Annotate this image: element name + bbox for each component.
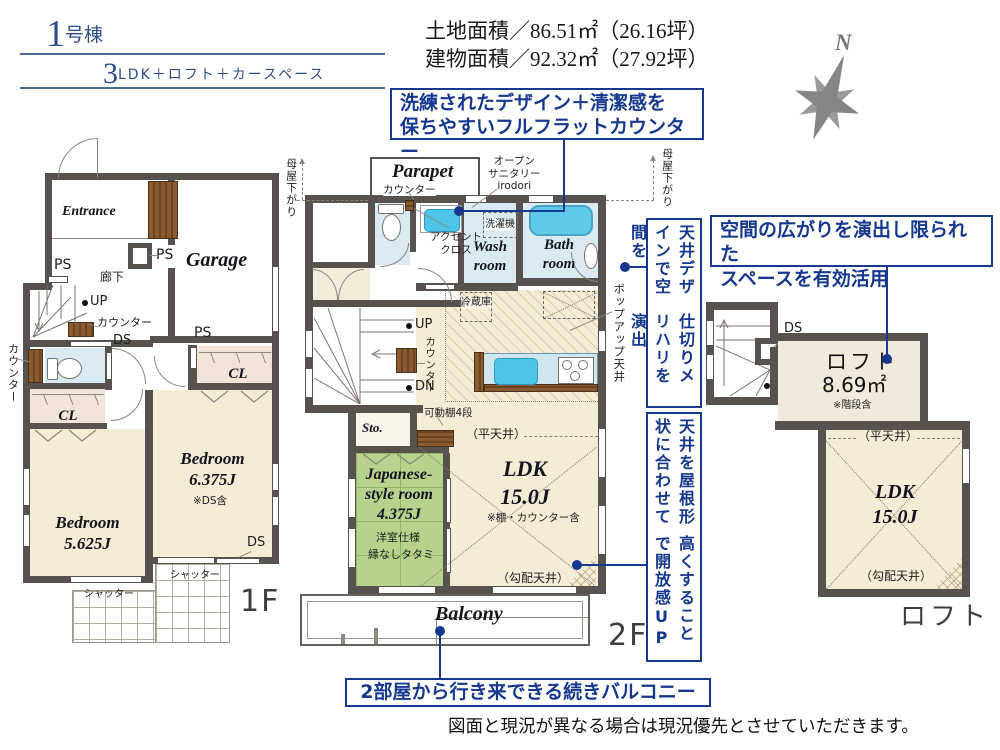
open-sanitary-line3: irodori [488,180,541,193]
closet-label: CL [218,365,258,384]
jp-note1: 洋室仕様 [376,532,420,545]
counter-label-vertical: カウンター [6,343,19,403]
closet-rod [199,352,271,363]
window [528,195,554,203]
bath-line2: room [528,255,590,274]
pointer-line [150,255,158,256]
window [378,586,436,594]
window [272,496,279,526]
shutter-label: シャッター [84,589,134,601]
accent-counter-wedge [405,200,414,211]
bathroom-label: Bath room [528,236,590,274]
stair-counter [396,348,417,373]
up-dot [82,300,88,306]
folding-door-mark [200,390,230,404]
moya-dash [653,160,654,200]
ds-slot [70,341,112,347]
wall [272,173,279,270]
ceiling-boundary-line [917,438,960,439]
bedroom1-label: Bedroom 5.625J [40,512,135,555]
up-label: UP [90,295,107,310]
connector-line [628,266,646,268]
flat-counter-line2: 保ちやすいフルフラットカウンター [400,115,694,164]
window [272,463,279,491]
window [706,354,714,380]
bedroom2-size: 6.375J [165,469,260,490]
toilet-bowl [382,214,401,241]
annotation-loft-space: 空間の広がりを演出し限られた スペースを有効活用 [710,215,993,267]
connector-dot [620,262,630,272]
folding-door-mark [68,429,98,443]
ceiling-height-col1: 天井を屋根形状に合わせて [651,418,697,535]
wall [168,268,175,340]
annotation-ceiling-height: 天井を屋根形状に合わせて 高くすることで開放感UP [646,412,702,662]
connector-line [459,210,565,212]
toilet-tank [378,204,404,214]
annotation-ceiling-design: 天井デザインで空間を 仕切りメリハリを演出 [646,218,702,408]
loft-ldk-label: LDK 15.0J [855,480,935,530]
ps-slot [48,276,68,283]
annotation-balcony: 2部屋から行き来できる続きバルコニー [345,678,711,707]
moya-arrow [299,158,305,164]
ps-label: PS [194,325,211,341]
entrance-label: Entrance [62,203,116,221]
floor2-label: 2F [608,618,648,653]
ceiling-height-col2: 高くすることで開放感UP [651,535,697,656]
unit-number: 1 [46,13,65,55]
ps-box [128,243,152,269]
loft-ldk-size: 15.0J [855,505,935,530]
wall [145,390,153,583]
ceiling-boundary-line [828,438,856,439]
up-label: UP [415,318,432,333]
wash-line2: room [464,257,516,276]
connector-line [439,632,441,678]
flat-counter-line1: 洗練されたデザイン＋清潔感を [400,91,694,115]
moya-dash [302,163,303,200]
compass-north-label: N [834,30,853,55]
closet-label: CL [48,407,88,426]
shutter-window [70,576,142,583]
balcony-post [374,628,378,644]
open-sanitary-line2: サニタリー [488,168,541,181]
moya-dash [297,200,368,201]
bedroom1-size: 5.625J [40,533,135,554]
entrance-door-arc [58,138,98,178]
loft-space-line2: スペースを有効活用 [720,267,983,291]
shutter-window [157,557,215,564]
wall [706,397,778,405]
wall [272,330,279,564]
unit-title: 1号棟 [46,12,103,56]
plan-suffix: LDK＋ロフト＋カースペース [118,67,325,83]
ds-label: DS [113,334,131,349]
burner-icon [578,360,588,370]
jp-size: 4.375J [352,505,446,525]
bedroom2-note: ※DS含 [193,495,227,507]
ldk-name: LDK [485,455,565,483]
washroom-label: Wash room [464,238,516,276]
wall [150,336,279,343]
connector-line [563,138,565,211]
wall [770,347,778,405]
bedroom1-name: Bedroom [40,512,135,533]
bedroom2-label: Bedroom 6.375J [165,448,260,491]
disclaimer: 図面と現況が異なる場合は現況優先とさせていただきます。 [448,717,919,737]
ps-slot [190,347,197,369]
connector-dot [454,206,464,216]
ds-label: DS [247,536,265,551]
wall [775,333,928,341]
title-divider-bottom [20,87,385,89]
window [305,368,313,398]
unit-suffix: 号棟 [65,24,103,46]
wall [305,405,423,413]
sliding-door [446,528,451,573]
burner-icon [570,371,580,381]
washer-label: 洗濯機 [485,219,515,231]
building-area: 建物面積／92.32㎡（27.92坪） [425,47,709,71]
wash-line1: Wash [464,238,516,257]
burner-icon [562,360,572,370]
door-arc [111,389,143,421]
bedroom2-name: Bedroom [165,448,260,469]
wall [348,446,449,453]
wall [28,383,107,389]
ldk-size: 15.0J [485,483,565,511]
folding-door-mark [240,390,270,404]
fridge-label: 冷蔵庫 [461,297,491,309]
connector-dot [435,626,445,636]
kitchen-cabinet-side [474,352,484,392]
storage-label: Sto. [362,420,383,436]
ps-label: PS [54,257,71,273]
moya-label: 母屋下がり [284,158,297,218]
wall [313,262,370,268]
loft-size: 8.69㎡ [822,374,887,397]
jp-line1: Japanese- [352,465,446,485]
up-dot [406,323,412,329]
counter-label-vertical: カウンター [424,336,436,394]
ldk-label: LDK 15.0J [485,455,565,510]
ceiling-boundary-line [524,436,598,437]
popup-ceiling-label: ポップアップ天井 [612,283,625,383]
shelf-label: 可動棚4段 [424,407,473,419]
floorplan-sheet: 1号棟 3LDK＋ロフト＋カースペース 土地面積／86.51㎡（26.16坪） … [0,0,1000,750]
plan-number: 3 [103,57,118,90]
loft-ldk-name: LDK [855,480,935,505]
entrance-door-leaf [97,138,98,178]
dn-dot [406,385,412,391]
ceiling-design-col2: 仕切りメリハリを演出 [651,313,697,402]
ps-label: PS [156,247,173,263]
wall [368,200,375,268]
sloped-ceiling-label: （勾配天井） [860,570,932,584]
folding-door-mark [34,429,64,443]
flat-ceiling-label: （平天井） [466,428,526,442]
movable-shelf [417,430,454,447]
wall [818,421,826,597]
floor1-label: 1F [240,584,280,619]
kitchen-cabinet-front [484,384,598,392]
sloped-ceiling-label: （勾配天井） [497,572,569,586]
connector-dot [882,354,892,364]
window [305,330,313,358]
window [598,330,606,352]
pointer-line [417,363,425,364]
title-divider-top [20,53,385,55]
jp-line2: style room [352,485,446,505]
stairs-1f [31,285,89,339]
compass-icon: N [775,18,890,148]
wall [410,413,417,453]
japanese-room-label: Japanese- style room 4.375J [352,465,446,525]
wall [188,383,279,390]
loft-floor-label: ロフト [900,596,990,633]
loft-note: ※階段含 [833,400,871,412]
flat-ceiling-label: （平天井） [858,430,918,444]
plan-type: 3LDK＋ロフト＋カースペース [103,57,325,91]
window [598,428,606,478]
kitchen-sink [494,358,538,385]
hallway-label: 廊下 [100,271,124,285]
ds-slot [216,558,260,564]
toilet-bowl [57,358,82,379]
shutter-label: シャッター [170,570,220,582]
closet-rod [32,394,104,405]
wall [706,302,778,310]
garage-door-opening [272,266,279,332]
wall [45,173,52,288]
connector-line [577,564,646,566]
ceiling-design-col1: 天井デザインで空間を [651,224,697,313]
connector-dot [572,560,582,570]
counter-1f-left [28,349,43,383]
window [348,528,356,568]
window [23,514,30,547]
ldk-note: ※棚・カウンター含 [487,512,580,524]
jp-note2: 縁なしタタミ [368,549,434,562]
window [598,505,606,555]
wall [920,333,928,425]
connector-line [886,266,888,359]
balcony-label: Balcony [435,602,503,627]
sliding-door [446,478,451,523]
counter-label: カウンター [97,317,152,330]
window [492,586,577,594]
annotation-flat-counter: 洗練されたデザイン＋清潔感を 保ちやすいフルフラットカウンター [390,88,704,140]
window [23,468,30,506]
moya-dash [606,200,654,201]
shoe-cabinet [148,181,178,239]
balcony-note-text: 2部屋から行き来できる続きバルコニー [355,680,701,706]
garage-label: Garage [186,248,247,273]
window [706,320,714,346]
bath-line1: Bath [528,236,590,255]
window [962,448,970,484]
land-area: 土地面積／86.51㎡（26.16坪） [425,19,709,43]
balcony-post [341,634,345,644]
loft-space-line1: 空間の広がりを演出し限られた [720,218,983,267]
